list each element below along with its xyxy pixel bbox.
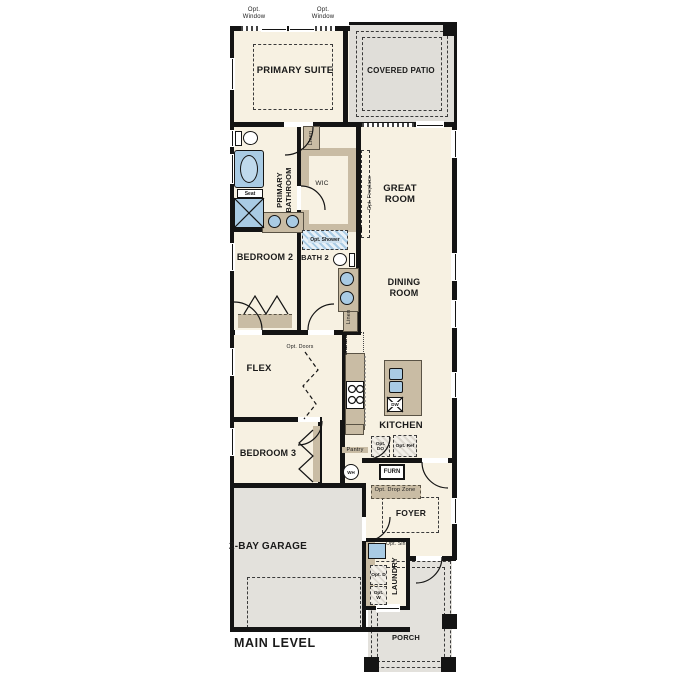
toilet-primary-icon	[235, 131, 242, 146]
kitchen-upper-cabinet-dotted	[346, 332, 364, 354]
room-label-dining: DINING ROOM	[374, 277, 434, 298]
toilet-bath2-bowl-icon	[333, 253, 347, 266]
island-sink-1-icon	[389, 368, 403, 380]
tub-basin-icon	[240, 155, 258, 183]
water-heater-label: WH	[347, 470, 355, 475]
bed3-closet-shelf	[313, 426, 320, 482]
window-greatroom-right	[451, 130, 458, 158]
floor-plan: Seat Opt. Shower DW Opt. DO Opt. Ref WH …	[0, 0, 687, 687]
window-bath-left-1	[228, 130, 235, 147]
opt-dryer-zone: Opt. D	[370, 565, 387, 585]
closet-label-linen-hall: Linen	[346, 305, 354, 329]
opt-window-label-left: Opt. Window	[236, 7, 272, 21]
primary-suite-dashed-zone	[253, 44, 333, 110]
wall-garage-left	[230, 487, 234, 631]
furnace-label: FURN	[384, 469, 401, 475]
opt-dryer-label: Opt. D	[371, 573, 385, 578]
shower-seat: Seat	[237, 189, 263, 198]
wall-patio-right	[454, 22, 457, 124]
wall-patio-top	[349, 22, 457, 25]
window-foyer-right	[451, 498, 458, 524]
opt-double-oven-zone: Opt. DO	[371, 436, 390, 457]
toilet-primary-bowl-icon	[243, 131, 258, 145]
window-suite-left	[228, 58, 235, 90]
laundry-sink-icon	[368, 543, 386, 559]
window-dining-right-2	[451, 300, 458, 328]
patio-corner-column	[443, 23, 457, 36]
dishwasher-icon: DW	[387, 397, 403, 412]
toilet-bath2-icon	[349, 253, 355, 267]
shower-seat-label: Seat	[245, 191, 256, 197]
room-label-primary-bathroom: PRIMARY BATHROOM	[276, 158, 296, 222]
patio-slider-door	[416, 121, 444, 128]
window-laundry	[376, 604, 400, 612]
opt-slider-hatch	[362, 123, 414, 127]
bed2-closet-shelf	[238, 314, 292, 328]
window-top-1	[261, 25, 287, 32]
sink-bath2-1-icon	[340, 272, 354, 286]
window-dining-right-1	[451, 253, 458, 281]
pantry-shelf	[345, 424, 364, 435]
door-gap-bath2	[308, 330, 334, 335]
furnace-icon: FURN	[379, 464, 405, 480]
level-label: MAIN LEVEL	[234, 636, 354, 651]
door-gap-bed3	[298, 417, 320, 422]
wall-right	[452, 122, 457, 560]
opt-window-hatch-right	[315, 26, 335, 31]
porch-column-se	[441, 657, 456, 672]
door-gap-front	[416, 556, 442, 561]
room-label-foyer: FOYER	[386, 508, 436, 518]
opt-double-oven-label: Opt. DO	[372, 442, 389, 452]
wall-bed3-garage	[230, 483, 366, 488]
wic-door-gap	[301, 186, 309, 210]
opt-washer-zone: Opt. W	[370, 586, 387, 605]
opt-refrigerator-zone: Opt. Ref	[393, 435, 417, 457]
wic-floor	[309, 156, 348, 224]
opt-shower-label: Opt. Shower	[308, 237, 341, 243]
opt-fireplace-label: Opt. Fireplace	[368, 165, 380, 221]
room-label-primary-suite: PRIMARY SUITE	[255, 65, 335, 76]
closet-label-linen-upper: Linen	[308, 126, 316, 150]
opt-window-hatch-left	[241, 26, 261, 31]
closet-label-pantry: Pantry	[342, 447, 368, 453]
room-label-covered-patio: COVERED PATIO	[366, 66, 436, 75]
wall-suite-right	[343, 26, 348, 127]
room-label-laundry: LAUNDRY	[391, 547, 403, 605]
door-gap-kitchen	[422, 458, 448, 463]
room-label-garage: 2-BAY GARAGE	[228, 541, 308, 553]
garage-door-dashed	[247, 577, 361, 628]
shower-icon	[234, 198, 264, 228]
window-top-2	[289, 25, 315, 32]
island-sink-2-icon	[389, 381, 403, 393]
range-icon	[346, 381, 364, 409]
room-label-porch: PORCH	[385, 634, 427, 643]
door-gap-garage-hall	[362, 517, 366, 541]
opt-refrigerator-label: Opt. Ref	[396, 444, 415, 449]
opt-doors-label: Opt. Doors	[284, 344, 316, 350]
porch-column-sw	[364, 657, 379, 672]
room-label-kitchen: KITCHEN	[365, 420, 437, 431]
porch-column-ne	[442, 614, 457, 629]
room-label-bath2: BATH 2	[301, 254, 329, 263]
opt-shower-zone: Opt. Shower	[302, 230, 348, 250]
water-heater-icon: WH	[343, 464, 359, 480]
door-gap-bed2	[235, 330, 262, 335]
room-label-bedroom3: BEDROOM 3	[230, 448, 306, 459]
opt-washer-label: Opt. W	[371, 591, 386, 601]
window-kitchen-right	[451, 372, 458, 398]
dishwasher-label: DW	[391, 402, 399, 407]
sink-bath2-2-icon	[340, 291, 354, 305]
room-label-flex: FLEX	[236, 363, 282, 374]
opt-window-label-right: Opt. Window	[305, 7, 341, 21]
wall-garage-bottom	[230, 627, 410, 632]
wall-laundry-right	[406, 538, 410, 610]
window-flex-left	[228, 348, 235, 376]
opt-drop-zone-label: Opt. Drop Zone	[371, 487, 419, 493]
room-label-wic: WIC	[308, 180, 336, 188]
room-label-bedroom2: BEDROOM 2	[228, 252, 302, 263]
porch-dashed-border-inner	[377, 567, 445, 662]
